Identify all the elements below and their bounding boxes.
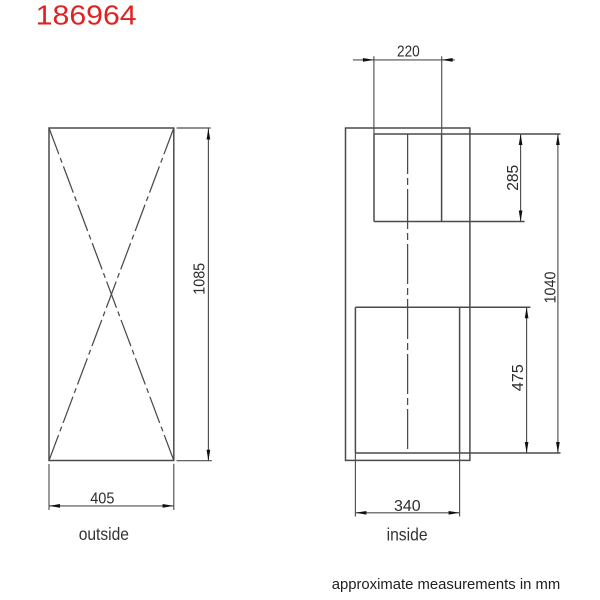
svg-text:475: 475 [510, 364, 527, 391]
svg-text:1085: 1085 [192, 263, 209, 295]
svg-text:inside: inside [387, 524, 428, 544]
svg-text:1040: 1040 [543, 272, 560, 304]
svg-text:outside: outside [79, 524, 129, 544]
svg-text:285: 285 [505, 165, 522, 191]
svg-text:405: 405 [90, 491, 114, 508]
svg-text:340: 340 [394, 498, 421, 515]
svg-text:220: 220 [397, 44, 420, 61]
svg-text:approximate measurements in mm: approximate measurements in mm [332, 576, 561, 593]
svg-text:186964: 186964 [36, 0, 137, 31]
